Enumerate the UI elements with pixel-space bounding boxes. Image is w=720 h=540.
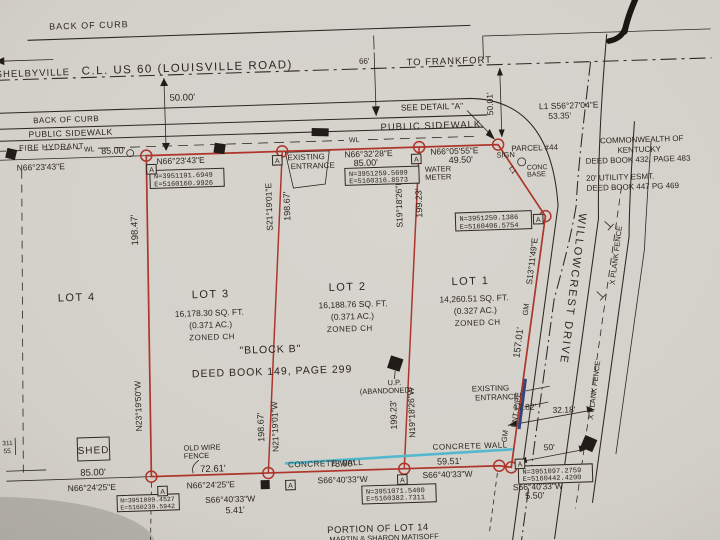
photo-tint <box>0 0 720 540</box>
survey-plat-photo: BACK OF CURB SHELBYVILLE C.L. US 60 (LOU… <box>0 0 720 540</box>
plat-drawing: BACK OF CURB SHELBYVILLE C.L. US 60 (LOU… <box>0 0 720 540</box>
